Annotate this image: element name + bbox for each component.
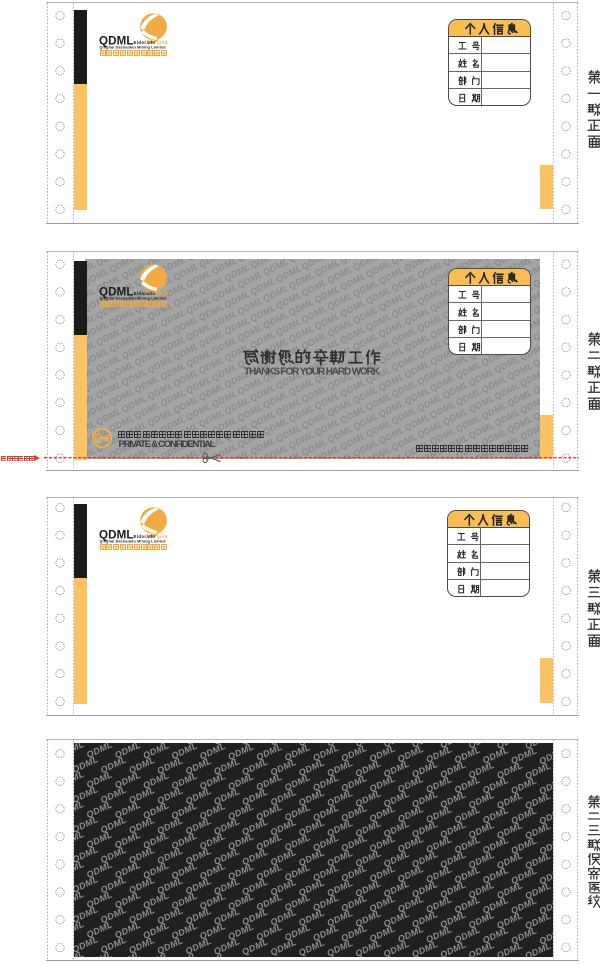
svg-text:Eldorado: Eldorado — [134, 534, 156, 539]
svg-text:gold: gold — [157, 40, 168, 45]
svg-text:PRIVATE & CONFIDENTIAL: PRIVATE & CONFIDENTIAL — [118, 439, 215, 450]
svg-text:gold: gold — [157, 534, 168, 539]
svg-text:THANKS FOR YOUR HARD WORK: THANKS FOR YOUR HARD WORK — [244, 367, 381, 378]
svg-text:Eldorado: Eldorado — [134, 291, 156, 296]
svg-text:gold: gold — [157, 291, 168, 296]
svg-text:Eldorado: Eldorado — [134, 40, 156, 45]
